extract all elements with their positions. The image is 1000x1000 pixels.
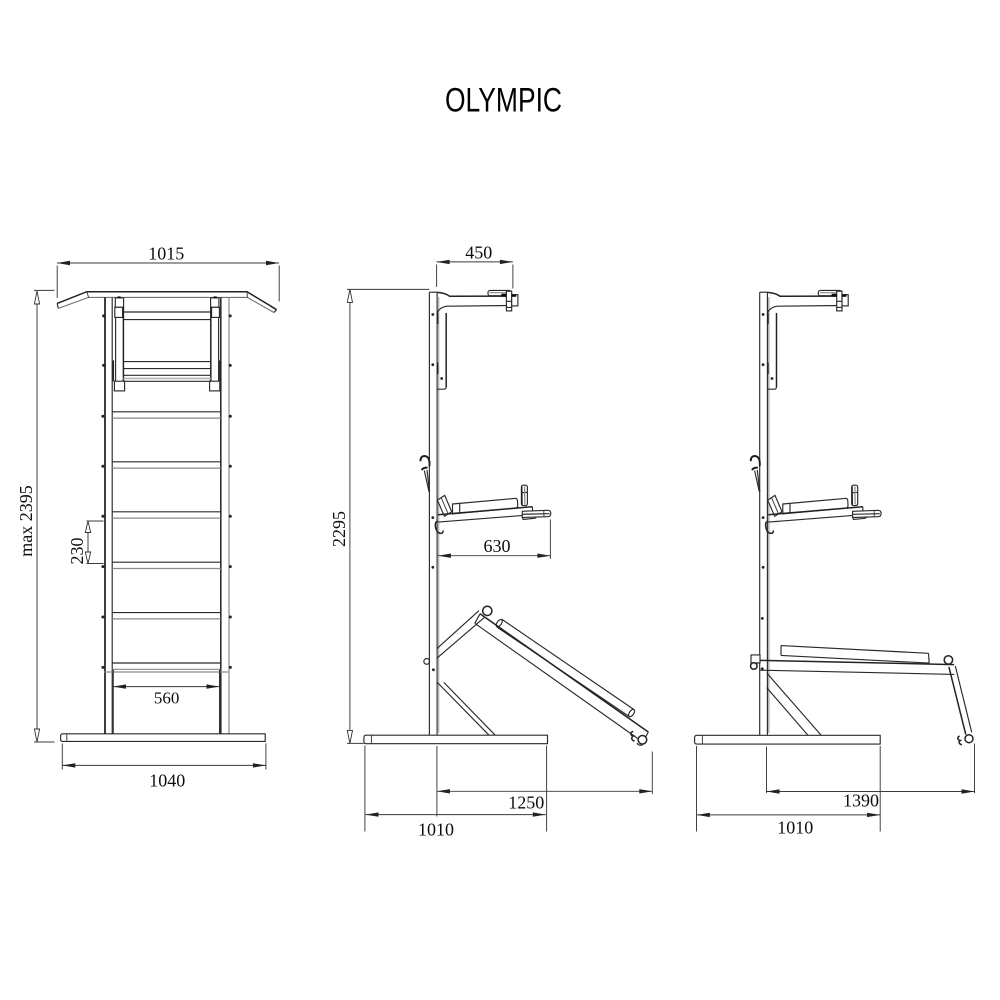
svg-text:230: 230 bbox=[67, 538, 87, 565]
svg-text:OLYMPIC: OLYMPIC bbox=[445, 82, 562, 120]
svg-text:1015: 1015 bbox=[148, 244, 184, 264]
svg-text:450: 450 bbox=[465, 243, 492, 263]
svg-text:1010: 1010 bbox=[777, 817, 813, 837]
svg-text:1390: 1390 bbox=[843, 790, 879, 810]
svg-text:560: 560 bbox=[154, 688, 180, 707]
svg-text:2295: 2295 bbox=[329, 511, 349, 547]
svg-text:630: 630 bbox=[484, 536, 511, 556]
svg-text:max 2395: max 2395 bbox=[16, 485, 36, 557]
svg-text:1040: 1040 bbox=[149, 770, 185, 790]
svg-text:1010: 1010 bbox=[418, 820, 454, 840]
svg-text:1250: 1250 bbox=[508, 793, 544, 813]
